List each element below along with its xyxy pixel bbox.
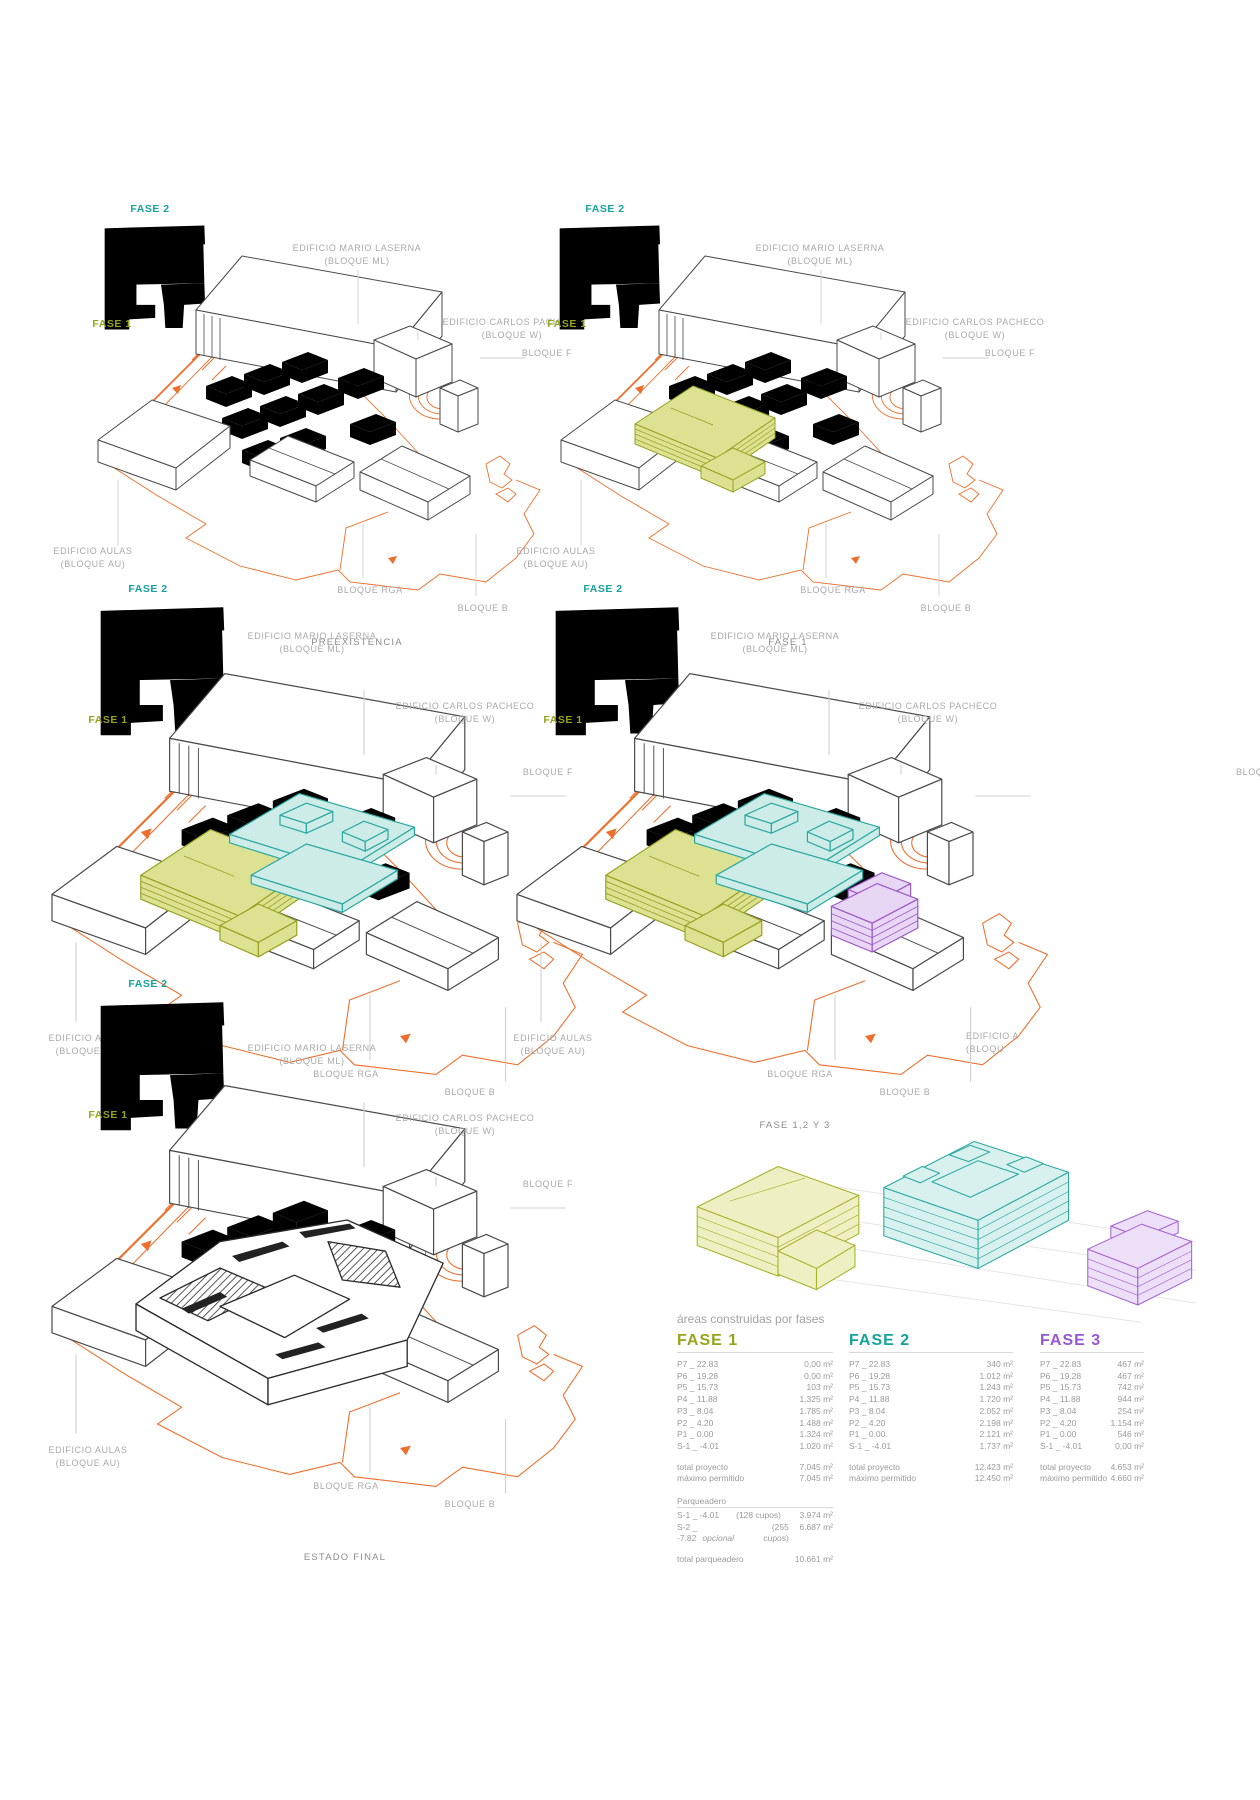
table-row: P5 _ 15.73 742 m²	[1040, 1382, 1144, 1394]
parqueadero-title: Parqueadero	[677, 1496, 833, 1508]
label-bloque-f: BLOQUE F	[985, 347, 1035, 360]
label-edificio-ml: EDIFICIO MARIO LASERNA(BLOQUE ML)	[711, 630, 840, 655]
caption-estado-final: ESTADO FINAL	[304, 1552, 386, 1563]
maximo-permitido-row: máximo permitido 12.450 m²	[849, 1473, 1013, 1485]
table-row: P2 _ 4.20 1.488 m²	[677, 1418, 833, 1430]
label-edificio-aulas: EDIFICIO AULAS(BLOQUE AU)	[517, 545, 596, 570]
table-row: P7 _ 22.83 0,00 m²	[677, 1359, 833, 1371]
keyplan-fase2-label: FASE 2	[128, 583, 167, 595]
column-header-fase2: FASE 2	[849, 1332, 1013, 1350]
label-bloque-b: BLOQUE B	[880, 1086, 931, 1099]
table-row: S-1 _ -4.01 1.737 m²	[849, 1441, 1013, 1453]
label-bloque-b: BLOQUE B	[445, 1498, 496, 1511]
maximo-permitido-row: máximo permitido 7.045 m²	[677, 1473, 833, 1485]
column-header-fase3: FASE 3	[1040, 1332, 1144, 1350]
table-column-fase2: FASE 2 P7 _ 22.83 340 m² P6 _ 19.28 1.01…	[849, 1332, 1013, 1485]
total-proyecto-row: total proyecto 4.653 m²	[1040, 1462, 1144, 1474]
table-row: S-2 _ -7.82opcional (255 cupos) 6.687 m²	[677, 1522, 833, 1545]
table-row: P6 _ 19.28 1.012 m²	[849, 1371, 1013, 1383]
label-edificio-aulas: EDIFICIO AULAS(BLOQUE AU)	[54, 545, 133, 570]
total-proyecto-row: total proyecto 7.045 m²	[677, 1462, 833, 1474]
column-rule	[849, 1352, 1013, 1353]
column-rule	[677, 1352, 833, 1353]
phasing-poster: FASE 2 FASE 1 FASE 3 EDIFICIO MARIO LASE…	[0, 0, 1260, 1800]
level-rows-fase1: P7 _ 22.83 0,00 m² P6 _ 19.28 0,00 m² P5…	[677, 1359, 833, 1453]
label-edificio-aulas-cut: EDIFICIO A(BLOQU	[966, 1030, 1019, 1055]
label-bloque-rga: BLOQUE RGA	[767, 1068, 833, 1081]
label-edificio-ml: EDIFICIO MARIO LASERNA(BLOQUE ML)	[248, 1042, 377, 1067]
label-bloque-f-cut: BLOQ	[1236, 766, 1260, 779]
maximo-permitido-row: máximo permitido 4.660 m²	[1040, 1473, 1144, 1485]
table-column-fase3: FASE 3 P7 _ 22.83 467 m² P6 _ 19.28 467 …	[1040, 1332, 1144, 1485]
axon-drawing-preexistencia	[88, 228, 558, 628]
table-title: áreas construidas por fases	[677, 1312, 824, 1326]
axon-drawing-fase1	[551, 228, 1021, 628]
table-row: P5 _ 15.73 103 m²	[677, 1382, 833, 1394]
keyplan-fase2-label: FASE 2	[128, 978, 167, 990]
label-bloque-rga: BLOQUE RGA	[313, 1480, 379, 1493]
label-edificio-aulas: EDIFICIO AULAS(BLOQUE AU)	[49, 1444, 128, 1469]
table-row: P7 _ 22.83 467 m²	[1040, 1359, 1144, 1371]
table-row: P3 _ 8.04 254 m²	[1040, 1406, 1144, 1418]
table-row: P1 _ 0.00 546 m²	[1040, 1429, 1144, 1441]
label-edificio-cp: EDIFICIO CARLOS PACHECO(BLOQUE W)	[906, 316, 1045, 341]
label-bloque-f: BLOQUE F	[523, 1178, 573, 1191]
label-edificio-cp: EDIFICIO CARLOS PACHECO(BLOQUE W)	[859, 700, 998, 725]
label-edificio-cp: EDIFICIO CARLOS PACHECO(BLOQUE W)	[396, 1112, 535, 1137]
table-row: P1 _ 0.00 1.324 m²	[677, 1429, 833, 1441]
parqueadero-section: Parqueadero S-1 _ -4.01 (128 cupos) 3.97…	[677, 1496, 833, 1565]
table-row: P6 _ 19.28 467 m²	[1040, 1371, 1144, 1383]
label-edificio-ml: EDIFICIO MARIO LASERNA(BLOQUE ML)	[293, 242, 422, 267]
level-rows-fase2: P7 _ 22.83 340 m² P6 _ 19.28 1.012 m² P5…	[849, 1359, 1013, 1453]
table-row: P6 _ 19.28 0,00 m²	[677, 1371, 833, 1383]
total-parqueadero-row: total parqueadero 10.661 m²	[677, 1554, 833, 1566]
table-row: P3 _ 8.04 2.052 m²	[849, 1406, 1013, 1418]
label-bloque-b: BLOQUE B	[921, 602, 972, 615]
table-row: P4 _ 11.88 1.325 m²	[677, 1394, 833, 1406]
table-row: S-1 _ -4.01 (128 cupos) 3.974 m²	[677, 1510, 833, 1522]
keyplan-fase2-label: FASE 2	[583, 583, 622, 595]
column-header-fase1: FASE 1	[677, 1332, 833, 1350]
table-row: P5 _ 15.73 1.243 m²	[849, 1382, 1013, 1394]
label-bloque-rga: BLOQUE RGA	[800, 584, 866, 597]
label-edificio-ml: EDIFICIO MARIO LASERNA(BLOQUE ML)	[248, 630, 377, 655]
label-edificio-ml: EDIFICIO MARIO LASERNA(BLOQUE ML)	[756, 242, 885, 267]
total-proyecto-row: total proyecto 12.423 m²	[849, 1462, 1013, 1474]
table-row: P1 _ 0.00 2.121 m²	[849, 1429, 1013, 1441]
level-rows-fase3: P7 _ 22.83 467 m² P6 _ 19.28 467 m² P5 _…	[1040, 1359, 1144, 1453]
parqueadero-rows: S-1 _ -4.01 (128 cupos) 3.974 m² S-2 _ -…	[677, 1510, 833, 1545]
keyplan-fase2-label: FASE 2	[130, 203, 169, 215]
exploded-phase-masses	[660, 1128, 1200, 1330]
table-row: P2 _ 4.20 1.154 m²	[1040, 1418, 1144, 1430]
label-bloque-rga: BLOQUE RGA	[337, 584, 403, 597]
keyplan-fase2-label: FASE 2	[585, 203, 624, 215]
column-rule	[1040, 1352, 1144, 1353]
table-row: P4 _ 11.88 944 m²	[1040, 1394, 1144, 1406]
table-row: P7 _ 22.83 340 m²	[849, 1359, 1013, 1371]
table-row: P2 _ 4.20 2.198 m²	[849, 1418, 1013, 1430]
label-bloque-b: BLOQUE B	[458, 602, 509, 615]
table-row: P4 _ 11.88 1.720 m²	[849, 1394, 1013, 1406]
table-row: S-1 _ -4.01 0,00 m²	[1040, 1441, 1144, 1453]
table-column-fase1: FASE 1 P7 _ 22.83 0,00 m² P6 _ 19.28 0,0…	[677, 1332, 833, 1565]
table-row: S-1 _ -4.01 1.020 m²	[677, 1441, 833, 1453]
table-row: P3 _ 8.04 1.785 m²	[677, 1406, 833, 1418]
